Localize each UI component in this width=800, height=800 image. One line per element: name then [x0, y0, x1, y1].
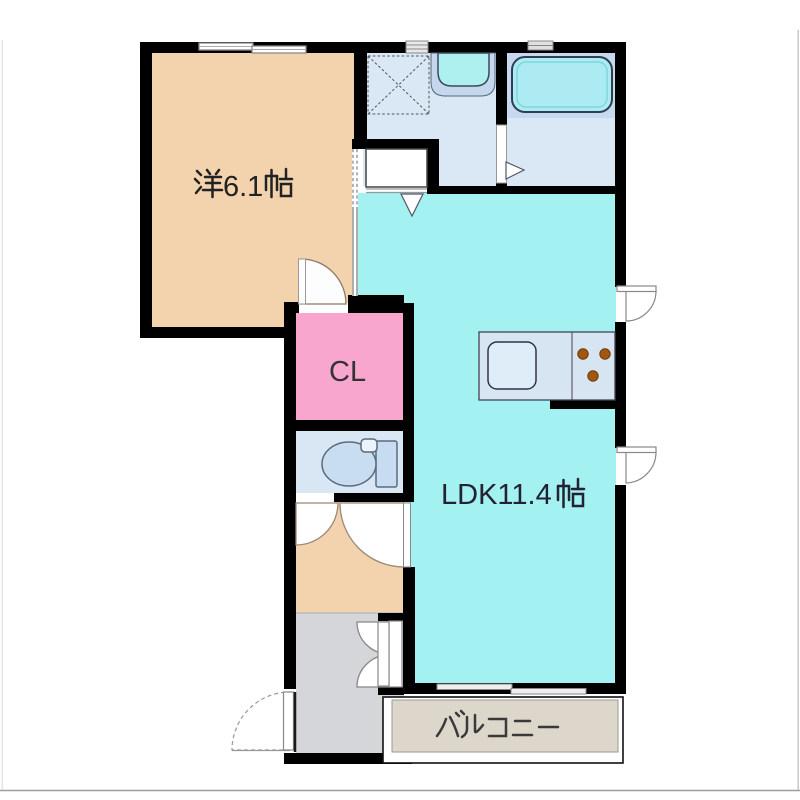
- svg-text:CL: CL: [329, 356, 366, 388]
- svg-text:LDK11.4: LDK11.4: [441, 479, 552, 511]
- svg-text:6.1: 6.1: [223, 171, 263, 203]
